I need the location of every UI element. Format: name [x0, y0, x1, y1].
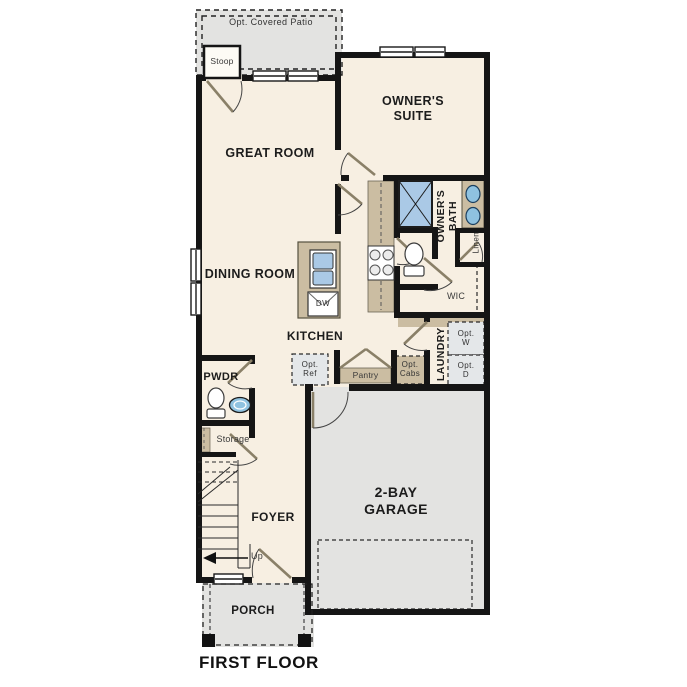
- page-title: FIRST FLOOR: [199, 653, 359, 673]
- label-opt-covered-patio: Opt. Covered Patio: [211, 17, 331, 28]
- label-garage: 2-BAY GARAGE: [346, 484, 446, 517]
- label-opt-washer: Opt. W: [454, 329, 478, 348]
- label-up: Up: [246, 551, 268, 562]
- label-opt-ref: Opt. Ref: [297, 360, 323, 379]
- label-linen: Linen: [471, 226, 480, 260]
- porch-post: [298, 634, 311, 647]
- cooktop-icon: [368, 246, 394, 280]
- label-owners-bath: OWNER'S BATH: [435, 181, 459, 251]
- label-owners-suite: OWNER'S SUITE: [363, 94, 463, 124]
- floor-plan-drawing: [0, 0, 687, 687]
- label-foyer: FOYER: [233, 510, 313, 524]
- label-pwdr: PWDR: [196, 371, 246, 384]
- label-laundry: LAUNDRY: [435, 324, 447, 384]
- shower-icon: [399, 181, 432, 227]
- label-wic: WIC: [436, 291, 476, 302]
- floor-plan: Opt. Covered Patio Stoop OWNER'S SUITE G…: [0, 0, 687, 687]
- label-opt-cabs: Opt. Cabs: [396, 360, 424, 379]
- label-storage: Storage: [203, 434, 263, 445]
- label-dw: DW: [313, 299, 333, 308]
- porch-post: [202, 634, 215, 647]
- label-porch: PORCH: [213, 605, 293, 619]
- label-pantry: Pantry: [340, 370, 391, 380]
- label-stoop: Stoop: [201, 56, 243, 66]
- label-dining-room: DINING ROOM: [200, 267, 300, 282]
- label-opt-dryer: Opt. D: [454, 361, 478, 380]
- label-great-room: GREAT ROOM: [220, 146, 320, 161]
- owners-toilet-icon: [404, 243, 424, 276]
- pwdr-sink-icon: [230, 398, 251, 413]
- label-kitchen: KITCHEN: [265, 329, 365, 343]
- island-sink-icon: [310, 250, 336, 288]
- pwdr-toilet-icon: [207, 388, 225, 418]
